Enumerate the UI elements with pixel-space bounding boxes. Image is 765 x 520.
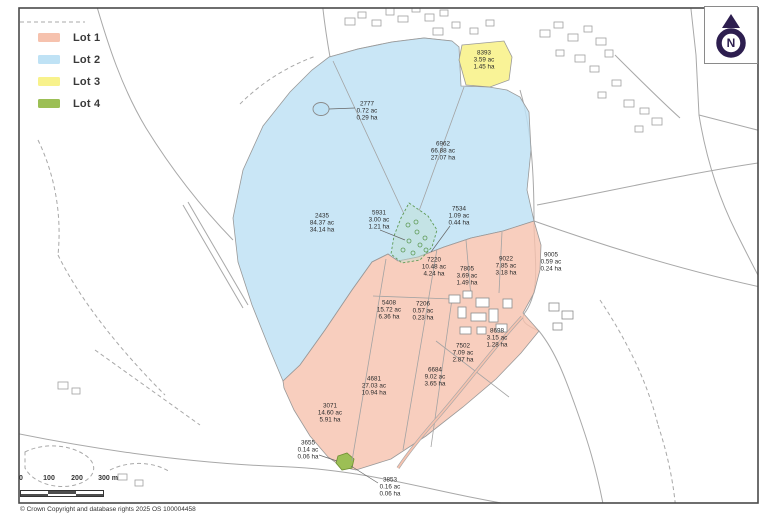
lot2-swatch	[38, 55, 60, 64]
scale-tick-200: 200	[71, 475, 83, 482]
parcel-acres: 7.85 ac	[495, 263, 516, 270]
parcel-id: 6684	[424, 367, 445, 374]
parcel-label-9022: 90227.85 ac3.18 ha	[495, 256, 516, 277]
parcel-hectares: 3.65 ha	[424, 381, 445, 388]
parcel-label-8698: 86983.15 ac1.28 ha	[486, 328, 507, 349]
scale-band	[20, 490, 104, 497]
parcel-id: 9005	[540, 252, 561, 259]
lot4-label: Lot 4	[73, 98, 100, 110]
parcel-hectares: 5.91 ha	[318, 417, 342, 424]
scale-bar: 0 100 200 300 m	[20, 475, 140, 501]
lot2-label: Lot 2	[73, 54, 100, 66]
parcel-label-5408: 540815.72 ac6.36 ha	[377, 300, 401, 321]
parcel-acres: 3.59 ac	[473, 57, 494, 64]
parcel-hectares: 1.28 ha	[486, 342, 507, 349]
copyright-text: © Crown Copyright and database rights 20…	[20, 506, 196, 513]
parcel-id: 2435	[310, 213, 335, 220]
north-indicator: N	[704, 6, 758, 64]
parcel-hectares: 6.36 ha	[377, 314, 401, 321]
parcel-label-6962: 696266.88 ac27.07 ha	[431, 141, 456, 162]
parcel-acres: 7.09 ac	[452, 350, 473, 357]
parcel-label-3071: 307114.60 ac5.91 ha	[318, 403, 342, 424]
parcel-label-6684: 66849.02 ac3.65 ha	[424, 367, 445, 388]
parcel-hectares: 0.06 ha	[297, 454, 318, 461]
pond	[313, 103, 329, 116]
parcel-id: 2777	[356, 101, 377, 108]
parcel-label-9005: 90050.59 ac0.24 ha	[540, 252, 561, 273]
parcel-hectares: 1.49 ha	[456, 280, 477, 287]
scale-tick-300: 300 m	[98, 475, 118, 482]
parcel-acres: 15.72 ac	[377, 307, 401, 314]
parcel-hectares: 0.23 ha	[412, 315, 433, 322]
lot1-swatch	[38, 33, 60, 42]
parcel-hectares: 1.45 ha	[473, 64, 494, 71]
lot3-label: Lot 3	[73, 76, 100, 88]
parcel-acres: 3.15 ac	[486, 335, 507, 342]
parcel-label-7502: 75027.09 ac2.87 ha	[452, 343, 473, 364]
lot1-label: Lot 1	[73, 32, 100, 44]
parcel-id: 4681	[362, 376, 387, 383]
parcel-hectares: 1.21 ha	[368, 224, 389, 231]
parcel-hectares: 10.94 ha	[362, 390, 387, 397]
parcel-id: 3071	[318, 403, 342, 410]
parcel-id: 8698	[486, 328, 507, 335]
parcel-acres: 0.59 ac	[540, 259, 561, 266]
parcel-acres: 9.02 ac	[424, 374, 445, 381]
parcel-acres: 27.03 ac	[362, 383, 387, 390]
parcel-acres: 10.48 ac	[422, 264, 446, 271]
parcel-label-7220: 722010.48 ac4.24 ha	[422, 257, 446, 278]
parcel-hectares: 0.06 ha	[379, 491, 400, 498]
scale-tick-100: 100	[43, 475, 55, 482]
parcel-hectares: 4.24 ha	[422, 271, 446, 278]
parcel-hectares: 2.87 ha	[452, 357, 473, 364]
parcel-label-2435: 243584.37 ac34.14 ha	[310, 213, 335, 234]
legend-item-lot1: Lot 1	[38, 33, 100, 42]
land-plan-map: Lot 1 Lot 2 Lot 3 Lot 4 83933.59 ac1.45 …	[0, 0, 765, 520]
parcel-hectares: 0.29 ha	[356, 115, 377, 122]
parcel-label-3853: 38530.16 ac0.06 ha	[379, 477, 400, 498]
north-letter: N	[705, 36, 757, 50]
parcel-id: 7220	[422, 257, 446, 264]
parcel-hectares: 3.18 ha	[495, 270, 516, 277]
parcel-id: 7206	[412, 301, 433, 308]
parcel-id: 9022	[495, 256, 516, 263]
parcel-id: 7534	[448, 206, 469, 213]
parcel-id: 7502	[452, 343, 473, 350]
scale-tick-labels: 0 100 200 300 m	[20, 475, 140, 485]
parcel-acres: 0.14 ac	[297, 447, 318, 454]
parcel-id: 5931	[368, 210, 389, 217]
parcel-acres: 66.88 ac	[431, 148, 456, 155]
parcel-hectares: 34.14 ha	[310, 227, 335, 234]
parcel-id: 3655	[297, 440, 318, 447]
parcel-label-5931: 59313.00 ac1.21 ha	[368, 210, 389, 231]
parcel-hectares: 0.44 ha	[448, 220, 469, 227]
legend-item-lot3: Lot 3	[38, 77, 100, 86]
parcel-label-8393: 83933.59 ac1.45 ha	[473, 50, 494, 71]
legend-item-lot4: Lot 4	[38, 99, 100, 108]
parcel-acres: 14.60 ac	[318, 410, 342, 417]
parcel-acres: 3.00 ac	[368, 217, 389, 224]
parcel-acres: 84.37 ac	[310, 220, 335, 227]
north-compass-icon	[705, 7, 757, 63]
parcel-label-3655: 36550.14 ac0.06 ha	[297, 440, 318, 461]
parcel-id: 8393	[473, 50, 494, 57]
parcel-id: 3853	[379, 477, 400, 484]
parcel-label-7805: 78053.69 ac1.49 ha	[456, 266, 477, 287]
parcel-label-2777: 27770.72 ac0.29 ha	[356, 101, 377, 122]
parcel-hectares: 0.24 ha	[540, 266, 561, 273]
scale-tick-0: 0	[19, 475, 23, 482]
legend-item-lot2: Lot 2	[38, 55, 100, 64]
parcel-label-7534: 75341.09 ac0.44 ha	[448, 206, 469, 227]
map-canvas	[0, 0, 765, 520]
parcel-acres: 3.69 ac	[456, 273, 477, 280]
parcel-acres: 1.09 ac	[448, 213, 469, 220]
parcel-label-7206: 72060.57 ac0.23 ha	[412, 301, 433, 322]
parcel-label-4681: 468127.03 ac10.94 ha	[362, 376, 387, 397]
parcel-id: 7805	[456, 266, 477, 273]
parcel-acres: 0.16 ac	[379, 484, 400, 491]
parcel-acres: 0.72 ac	[356, 108, 377, 115]
lot3-swatch	[38, 77, 60, 86]
parcel-acres: 0.57 ac	[412, 308, 433, 315]
parcel-id: 5408	[377, 300, 401, 307]
legend: Lot 1 Lot 2 Lot 3 Lot 4	[38, 33, 100, 121]
parcel-id: 6962	[431, 141, 456, 148]
parcel-hectares: 27.07 ha	[431, 155, 456, 162]
lot4-swatch	[38, 99, 60, 108]
